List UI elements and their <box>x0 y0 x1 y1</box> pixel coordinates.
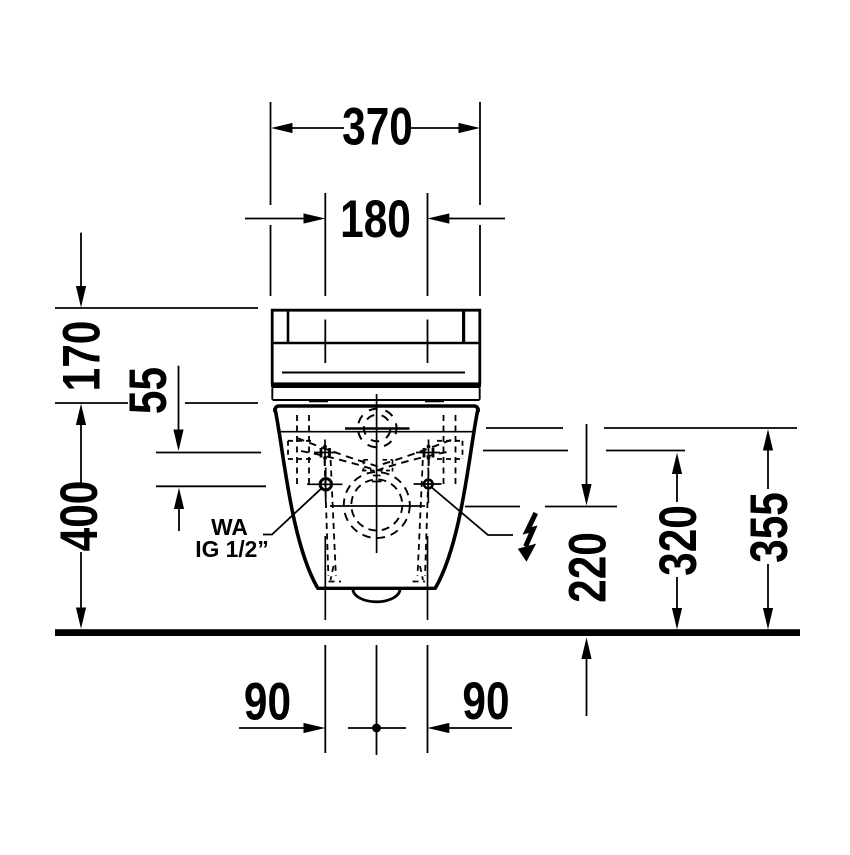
svg-text:90: 90 <box>244 673 291 732</box>
svg-text:370: 370 <box>342 98 413 157</box>
svg-text:220: 220 <box>559 532 618 603</box>
svg-text:IG 1/2”: IG 1/2” <box>195 536 268 562</box>
svg-text:400: 400 <box>51 481 110 552</box>
svg-text:90: 90 <box>462 673 509 732</box>
svg-text:180: 180 <box>340 191 411 250</box>
svg-text:320: 320 <box>650 505 709 576</box>
svg-text:170: 170 <box>53 321 112 392</box>
svg-text:355: 355 <box>741 492 800 563</box>
svg-text:55: 55 <box>120 367 179 414</box>
